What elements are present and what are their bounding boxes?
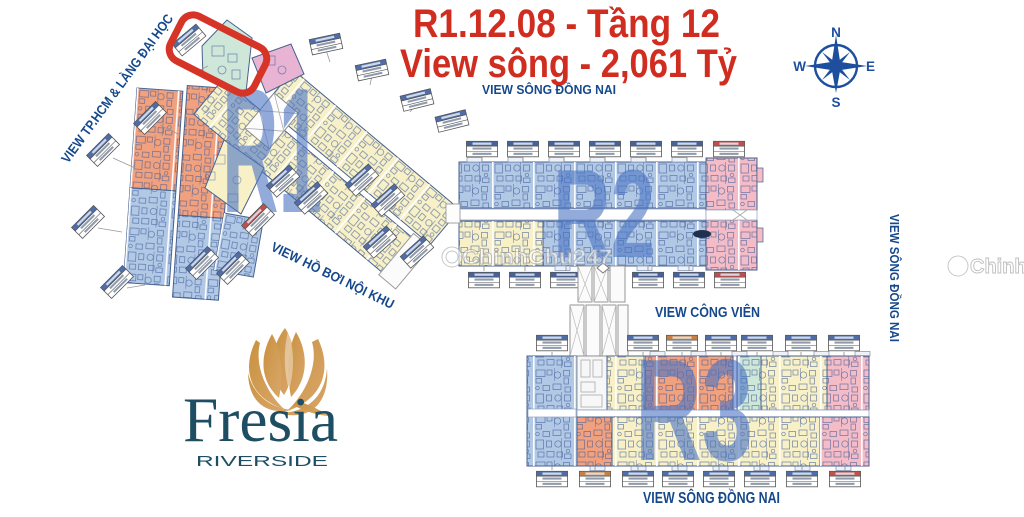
svg-text:VIEW CÔNG VIÊN: VIEW CÔNG VIÊN: [655, 303, 760, 321]
svg-text:RIVERSIDE: RIVERSIDE: [196, 454, 329, 470]
svg-text:R1.12.08 - Tầng 12: R1.12.08 - Tầng 12: [413, 2, 720, 46]
svg-text:E: E: [866, 59, 875, 74]
svg-text:View sông - 2,061 Tỷ: View sông - 2,061 Tỷ: [400, 42, 738, 86]
svg-text:S: S: [831, 95, 840, 110]
svg-text:VIEW SÔNG ĐỒNG NAI: VIEW SÔNG ĐỒNG NAI: [643, 488, 780, 507]
svg-text:VIEW SÔNG ĐỒNG NAI: VIEW SÔNG ĐỒNG NAI: [482, 82, 616, 97]
svg-text:N: N: [831, 25, 841, 40]
svg-text:VIEW SÔNG ĐỒNG NAI: VIEW SÔNG ĐỒNG NAI: [887, 214, 902, 342]
svg-text:R3: R3: [635, 329, 753, 491]
svg-text:W: W: [793, 59, 806, 74]
svg-text:Chinh: Chinh: [970, 256, 1024, 278]
svg-text:R1: R1: [222, 51, 322, 250]
svg-text:Fresia: Fresia: [183, 384, 338, 455]
svg-text:ChinhChu247: ChinhChu247: [462, 246, 612, 269]
